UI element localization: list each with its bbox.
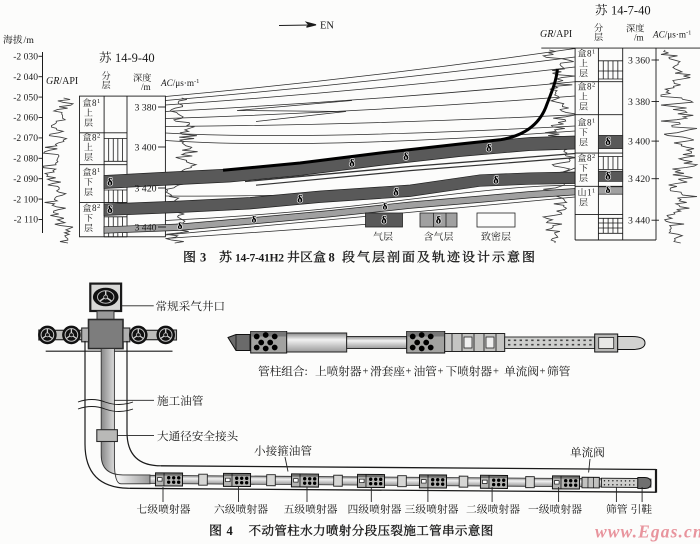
svg-text:δ: δ (107, 205, 112, 216)
svg-text:3 400: 3 400 (134, 142, 156, 153)
svg-text:3 420: 3 420 (134, 183, 156, 194)
svg-text:-2 080: -2 080 (13, 154, 38, 165)
svg-text:-2 060: -2 060 (13, 113, 38, 124)
svg-text:δ: δ (107, 178, 112, 189)
svg-text:3 380: 3 380 (628, 97, 650, 108)
svg-text:/m: /m (634, 33, 644, 43)
svg-text:δ: δ (605, 137, 610, 148)
svg-text:3: 3 (200, 251, 206, 265)
svg-text::: : (305, 364, 308, 378)
svg-text:+: + (363, 367, 369, 378)
svg-text:EN: EN (320, 21, 334, 32)
svg-text:+: + (438, 367, 444, 378)
svg-text:δ: δ (605, 172, 610, 183)
svg-text:1: 1 (97, 98, 100, 105)
svg-text:8: 8 (329, 251, 335, 265)
svg-text:δ: δ (178, 221, 183, 231)
svg-text:+: + (540, 367, 546, 378)
svg-text:-2 100: -2 100 (13, 194, 38, 205)
svg-text:14-7-40: 14-7-40 (611, 4, 651, 18)
svg-text:3 400: 3 400 (628, 136, 650, 147)
svg-text:-2 090: -2 090 (13, 174, 38, 185)
svg-text:AC/μs·m-1: AC/μs·m-1 (652, 29, 691, 39)
svg-text:AC/μs·m-1: AC/μs·m-1 (160, 78, 199, 88)
svg-text:3 440: 3 440 (628, 216, 650, 227)
svg-text:-2 110: -2 110 (14, 215, 39, 226)
svg-text:3 420: 3 420 (628, 174, 650, 185)
svg-text:-2 040: -2 040 (13, 72, 38, 83)
svg-text:δ: δ (606, 185, 611, 195)
svg-text:δ: δ (381, 216, 386, 227)
svg-text:14-9-40: 14-9-40 (115, 51, 155, 65)
svg-text:δ: δ (383, 202, 388, 212)
svg-text:+: + (493, 367, 499, 378)
svg-text:4: 4 (227, 524, 234, 538)
svg-text:/m: /m (141, 82, 151, 92)
svg-text:δ: δ (436, 216, 441, 227)
svg-text:GR/API: GR/API (540, 29, 572, 40)
svg-text:δ: δ (486, 143, 491, 154)
svg-text:/m: /m (24, 35, 35, 46)
svg-text:2: 2 (97, 203, 100, 210)
svg-text:1: 1 (592, 48, 595, 55)
svg-text:14-7-41H2: 14-7-41H2 (235, 252, 284, 265)
svg-text:-2 050: -2 050 (13, 92, 38, 103)
svg-text:δ: δ (403, 152, 408, 163)
svg-text:1: 1 (592, 117, 595, 124)
svg-text:δ: δ (297, 194, 302, 205)
svg-text:3 380: 3 380 (134, 102, 156, 113)
svg-text:2: 2 (97, 132, 100, 139)
svg-text:2: 2 (592, 153, 595, 160)
svg-text:δ: δ (493, 176, 498, 187)
svg-text:2: 2 (592, 82, 595, 89)
svg-text:GR/API: GR/API (46, 76, 78, 87)
svg-text:1: 1 (97, 167, 100, 174)
svg-text:3 360: 3 360 (628, 55, 650, 66)
svg-text:+: + (406, 367, 412, 378)
svg-text:-2 030: -2 030 (13, 52, 38, 63)
svg-text:www.Egas.cn: www.Egas.cn (595, 522, 700, 542)
svg-text:1: 1 (587, 188, 592, 198)
svg-text:3 440: 3 440 (134, 222, 156, 233)
svg-text:δ: δ (393, 187, 398, 198)
svg-text:δ: δ (349, 158, 354, 169)
svg-text:-2 070: -2 070 (13, 133, 38, 144)
svg-text:δ: δ (252, 214, 257, 224)
svg-text:1: 1 (592, 188, 595, 195)
